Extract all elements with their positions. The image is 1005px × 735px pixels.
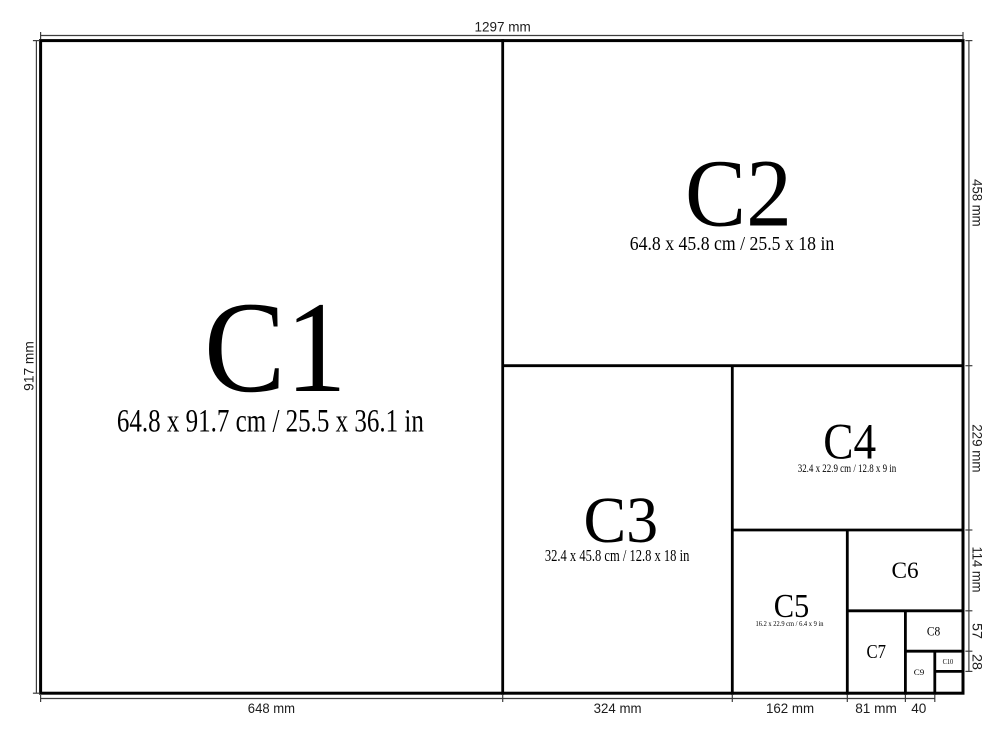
svg-text:81 mm: 81 mm	[855, 700, 897, 716]
svg-text:C1: C1	[204, 276, 347, 420]
svg-text:324 mm: 324 mm	[594, 700, 642, 716]
svg-text:32.4 x 45.8 cm / 12.8 x 18 in: 32.4 x 45.8 cm / 12.8 x 18 in	[545, 546, 690, 565]
svg-text:40: 40	[911, 700, 926, 716]
svg-text:C10: C10	[943, 658, 954, 666]
svg-text:C7: C7	[866, 641, 886, 663]
svg-text:64.8 x 45.8 cm / 25.5 x 18 in: 64.8 x 45.8 cm / 25.5 x 18 in	[630, 233, 835, 255]
svg-text:64.8 x 91.7 cm / 25.5 x 36.1 i: 64.8 x 91.7 cm / 25.5 x 36.1 in	[117, 403, 424, 439]
svg-text:162 mm: 162 mm	[766, 700, 814, 716]
svg-text:648 mm: 648 mm	[248, 700, 295, 716]
svg-text:C9: C9	[914, 668, 925, 677]
svg-text:C8: C8	[927, 624, 940, 638]
svg-text:57: 57	[969, 623, 984, 639]
svg-text:458 mm: 458 mm	[969, 179, 984, 227]
svg-text:C2: C2	[685, 139, 792, 246]
svg-text:1297 mm: 1297 mm	[474, 19, 530, 34]
svg-text:114 mm: 114 mm	[969, 547, 984, 593]
svg-text:917 mm: 917 mm	[22, 341, 37, 391]
svg-text:229 mm: 229 mm	[969, 424, 984, 472]
svg-text:16.2 x 22.9 cm / 6.4 x 9 in: 16.2 x 22.9 cm / 6.4 x 9 in	[756, 620, 824, 628]
svg-text:32.4 x 22.9 cm / 12.8 x 9 in: 32.4 x 22.9 cm / 12.8 x 9 in	[798, 462, 897, 475]
svg-text:28: 28	[969, 654, 984, 670]
svg-text:C6: C6	[892, 558, 919, 584]
